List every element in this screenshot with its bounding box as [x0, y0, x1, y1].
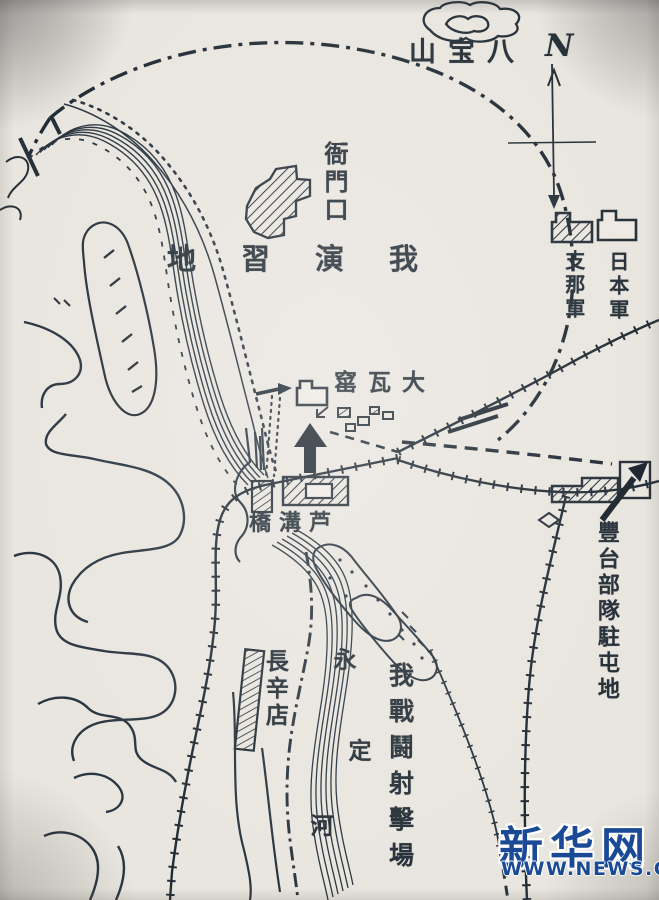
dike-tick-line — [398, 612, 508, 900]
map-photo: 山宝八 N 衙門口 地習演我 窰瓦大 橋溝芦 長辛店 永 定 河 我戰鬪射擊場 … — [0, 0, 659, 900]
fengtai-barracks-block — [552, 478, 618, 502]
town-inner-position-symbol — [306, 484, 332, 498]
babaoshan-label: 山宝八 — [409, 38, 526, 67]
compass-needle — [508, 64, 596, 209]
xinhua-url: WWW.NEWS.CN — [501, 858, 659, 880]
dawayao-label: 窰瓦大 — [334, 371, 436, 396]
legend-chinese-army-label: 支那軍 — [562, 250, 584, 322]
riverside-dotted-road — [266, 396, 280, 478]
dawayao-japanese-position-symbol — [297, 381, 327, 405]
legend-chinese-army-symbol — [552, 213, 592, 242]
junction-double-track-marks — [448, 404, 508, 432]
legend-symbols — [552, 211, 636, 242]
firing-range-label: 我戰鬪射擊場 — [387, 662, 414, 878]
river-boundary-dashdot — [287, 552, 312, 900]
stream-embankment — [64, 100, 277, 478]
fengtai-barracks — [539, 462, 650, 527]
drill-ground-label: 地習演我 — [167, 244, 463, 275]
lugouqiao-town-area — [235, 428, 348, 562]
small-pointer-arrow-east — [256, 383, 292, 395]
yongding-river-char-1: 永 — [334, 649, 357, 674]
island-hill-outline — [83, 222, 157, 415]
yamenkou-village-block — [246, 166, 310, 238]
compass-north-label: N — [545, 30, 573, 63]
yamenkou-label: 衙門口 — [320, 141, 346, 225]
legend-japanese-army-symbol — [598, 211, 636, 240]
boundary-dashed-link — [402, 442, 612, 464]
changxindian-label: 長辛店 — [262, 649, 287, 730]
yongding-river-char-3: 河 — [311, 815, 334, 840]
lugouqiao-label: 橋溝芦 — [249, 512, 339, 536]
attack-arrow-north — [294, 423, 327, 473]
river-meander-contours — [14, 322, 184, 900]
yongding-river-char-2: 定 — [349, 740, 372, 765]
railway-northeast — [398, 320, 659, 452]
babaoshan-mountain-cloud — [424, 2, 519, 41]
changxindian-town-block — [235, 649, 264, 750]
small-diamond-marker — [539, 513, 559, 527]
fengtai-garrison-label: 豐台部隊駐屯地 — [594, 521, 618, 703]
small-building-squares — [338, 407, 393, 431]
legend-japanese-army-label: 日本軍 — [606, 251, 628, 323]
terrain-squiggles — [0, 118, 70, 306]
dawayao-track-dashes — [330, 432, 398, 452]
hand-drawn-map-artwork — [0, 0, 659, 900]
small-pointer-arrow-nw — [317, 407, 328, 417]
